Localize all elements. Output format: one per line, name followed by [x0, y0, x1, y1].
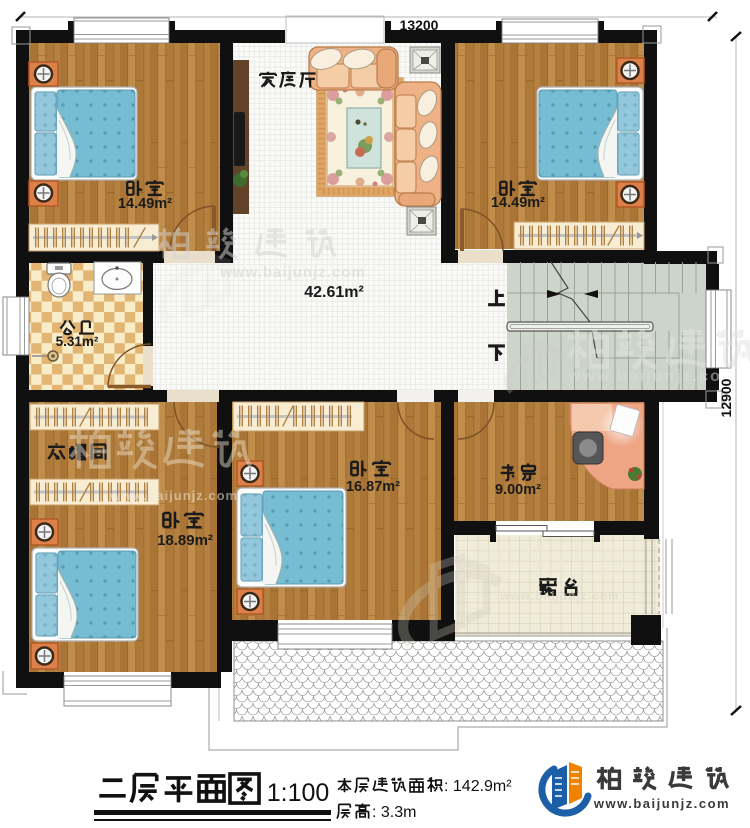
svg-text:www.baijunjz.com: www.baijunjz.com	[593, 796, 730, 811]
svg-text:9.00m²: 9.00m²	[495, 482, 541, 498]
svg-text:1:100: 1:100	[267, 779, 330, 807]
svg-text:18.89m²: 18.89m²	[157, 532, 213, 549]
svg-text:13200: 13200	[400, 17, 439, 33]
svg-text:16.87m²: 16.87m²	[346, 479, 400, 495]
svg-text:14.49m²: 14.49m²	[491, 195, 545, 211]
svg-text:: 3.3m: : 3.3m	[372, 804, 416, 821]
svg-text:5.31m²: 5.31m²	[56, 334, 99, 349]
svg-text:www.baijunjz.com: www.baijunjz.com	[109, 488, 238, 503]
svg-text:www.baijunjz.com: www.baijunjz.com	[499, 589, 620, 603]
svg-text:: 142.9m²: : 142.9m²	[444, 778, 512, 795]
svg-text:www.baijunjz.co: www.baijunjz.co	[567, 368, 722, 385]
svg-text:14.49m²: 14.49m²	[118, 196, 172, 212]
svg-text:42.61m²: 42.61m²	[304, 284, 364, 301]
svg-text:www.baijunjz.com: www.baijunjz.com	[219, 264, 365, 281]
